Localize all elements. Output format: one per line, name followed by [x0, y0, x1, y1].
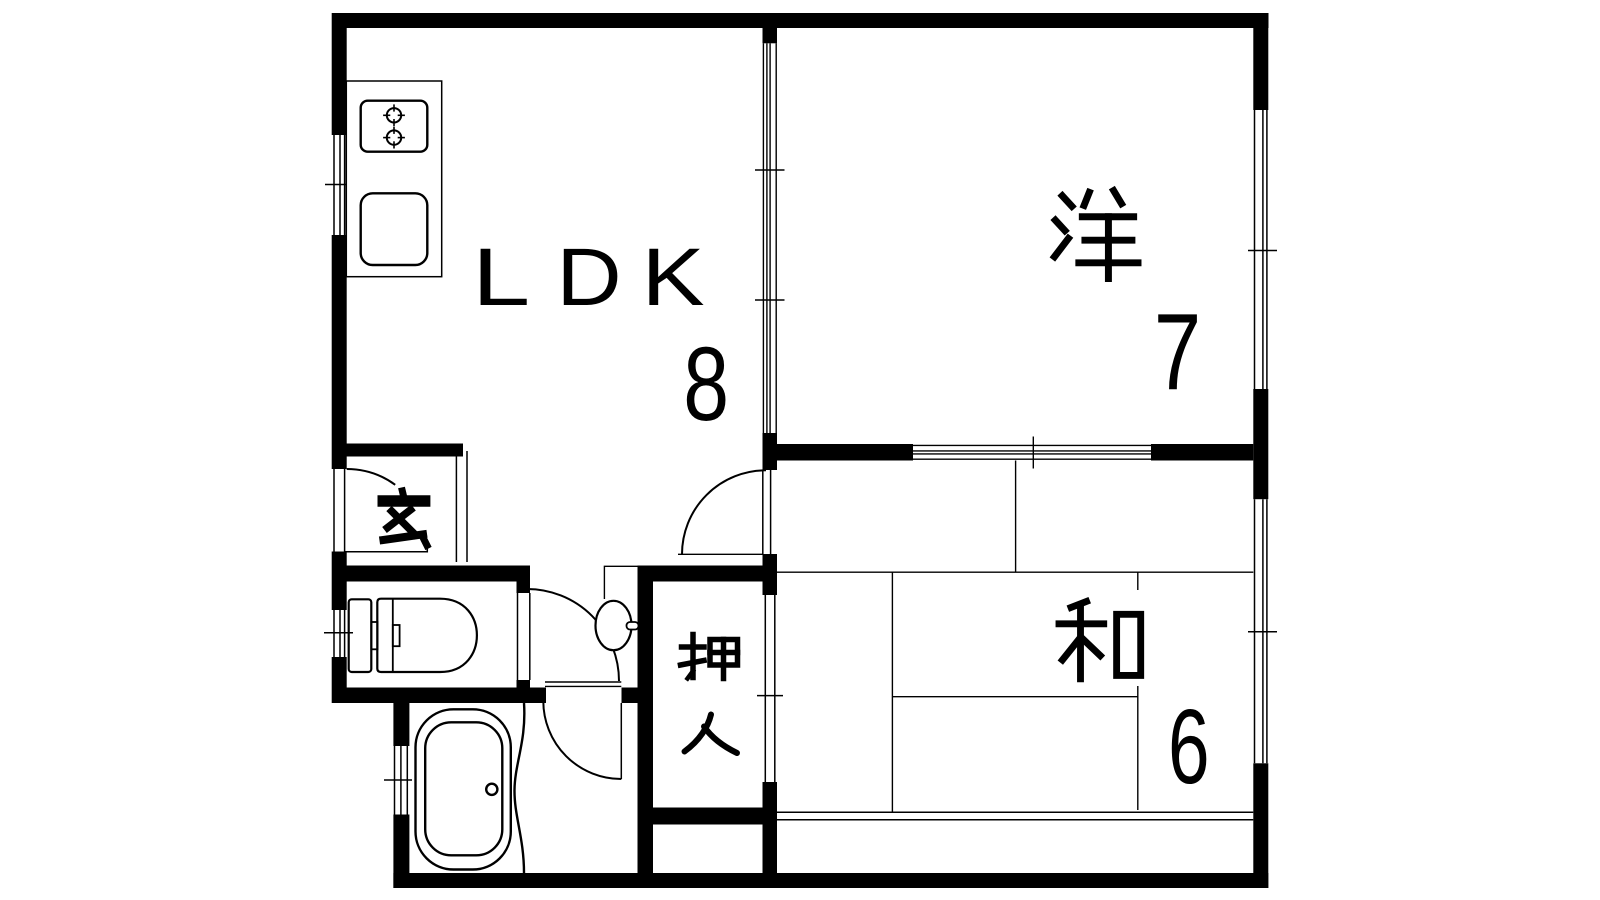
svg-text:K: K [642, 232, 705, 323]
svg-text:8: 8 [683, 326, 729, 443]
svg-text:D: D [556, 232, 621, 323]
svg-text:L: L [472, 232, 530, 323]
svg-text:6: 6 [1168, 688, 1210, 806]
svg-text:7: 7 [1154, 291, 1201, 413]
